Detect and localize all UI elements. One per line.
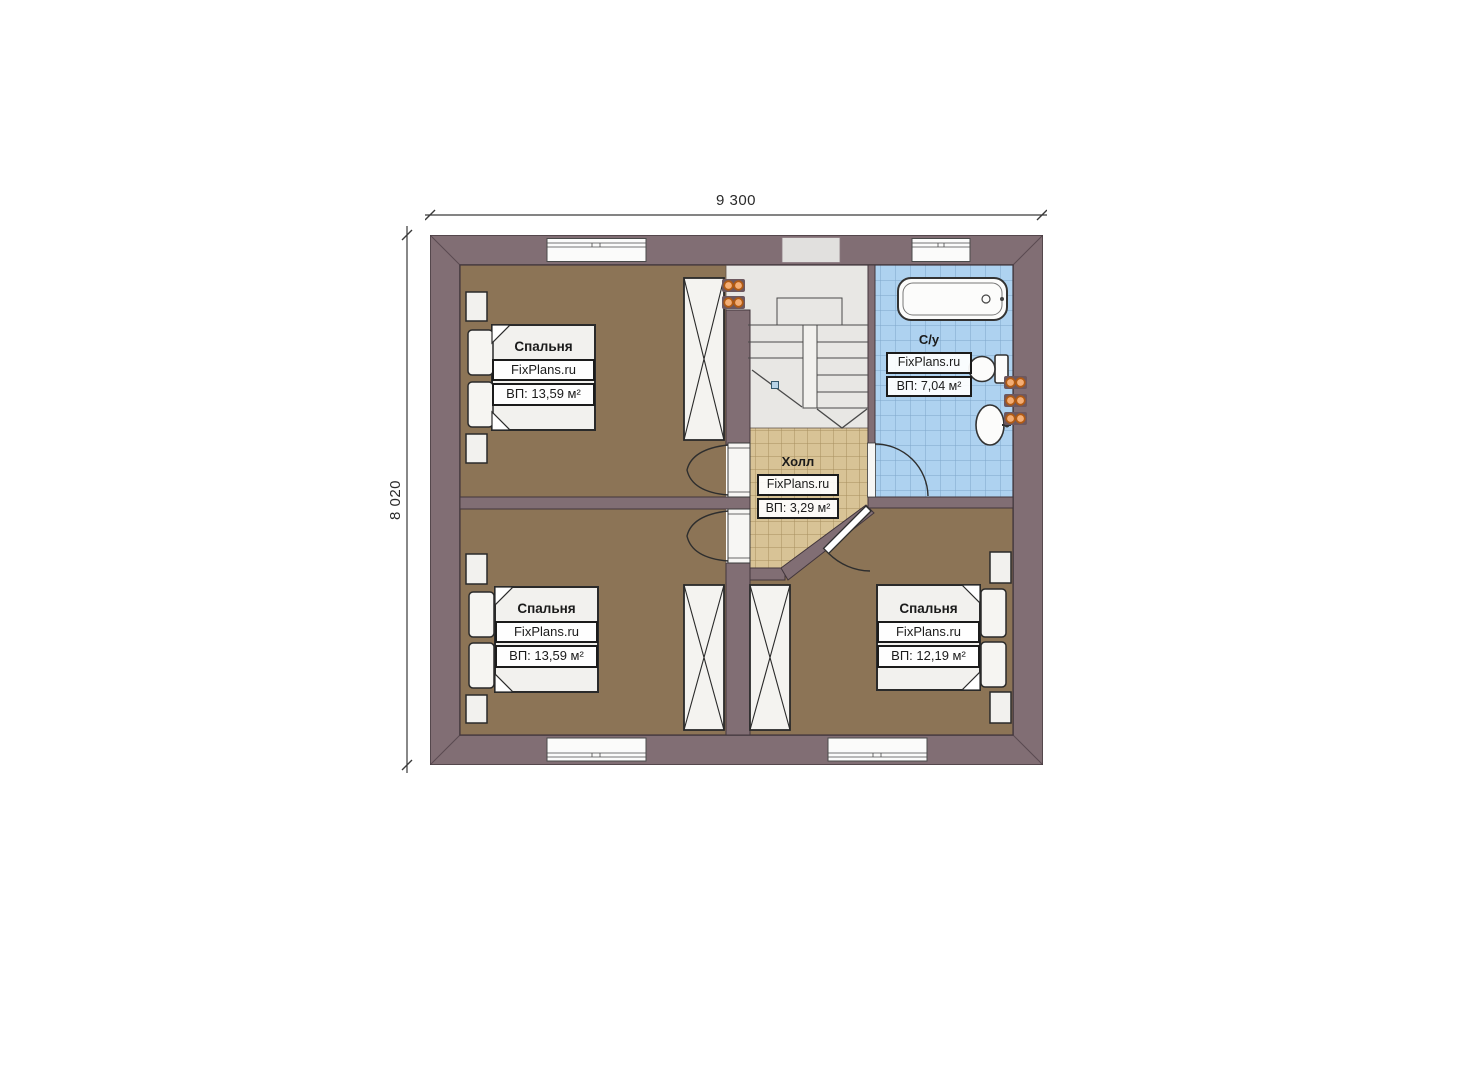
area-label: ВП: 13,59 м²	[495, 645, 598, 667]
toilet	[969, 355, 1008, 383]
radiator-icon	[1004, 412, 1027, 425]
radiator-icon	[722, 296, 745, 309]
stairwell-wall-opening	[782, 238, 840, 263]
wardrobe-bottom-left	[684, 585, 724, 730]
room-name: Холл	[782, 454, 815, 469]
area-label: ВП: 7,04 м²	[886, 376, 972, 398]
dimension-label-left: 8 020	[387, 467, 403, 533]
window-bottom-left	[547, 738, 646, 761]
brand-label: FixPlans.ru	[492, 359, 595, 381]
room-name: С/у	[919, 332, 939, 347]
bathtub	[898, 278, 1007, 320]
area-label: ВП: 3,29 м²	[757, 498, 839, 520]
room-label-bedroom-top-left: Спальня FixPlans.ru ВП: 13,59 м²	[492, 339, 595, 406]
room-label-bathroom: С/у FixPlans.ru ВП: 7,04 м²	[886, 332, 972, 397]
room-name: Спальня	[514, 339, 572, 354]
floor-plan-drawing	[430, 235, 1043, 765]
room-label-bedroom-bottom-left: Спальня FixPlans.ru ВП: 13,59 м²	[495, 601, 598, 668]
room-label-bedroom-bottom-right: Спальня FixPlans.ru ВП: 12,19 м²	[877, 601, 980, 668]
brand-label: FixPlans.ru	[495, 621, 598, 643]
area-label: ВП: 12,19 м²	[877, 645, 980, 667]
brand-label: FixPlans.ru	[757, 474, 839, 496]
radiator-icon	[1004, 394, 1027, 407]
window-top-left	[547, 239, 646, 262]
area-label: ВП: 13,59 м²	[492, 383, 595, 405]
room-label-hall: Холл FixPlans.ru ВП: 3,29 м²	[757, 454, 839, 519]
wardrobe-bottom-right	[750, 585, 790, 730]
brand-label: FixPlans.ru	[886, 352, 972, 374]
floor-plan: Спальня FixPlans.ru ВП: 13,59 м² Спальня…	[430, 235, 1043, 765]
dimension-label-top: 9 300	[686, 192, 786, 209]
brand-label: FixPlans.ru	[877, 621, 980, 643]
room-name: Спальня	[899, 601, 957, 616]
radiator-icon	[1004, 376, 1027, 389]
room-name: Спальня	[517, 601, 575, 616]
radiator-icon	[722, 279, 745, 292]
window-bottom-right	[828, 738, 927, 761]
wardrobe-top	[684, 278, 724, 440]
window-top-right	[912, 239, 970, 262]
